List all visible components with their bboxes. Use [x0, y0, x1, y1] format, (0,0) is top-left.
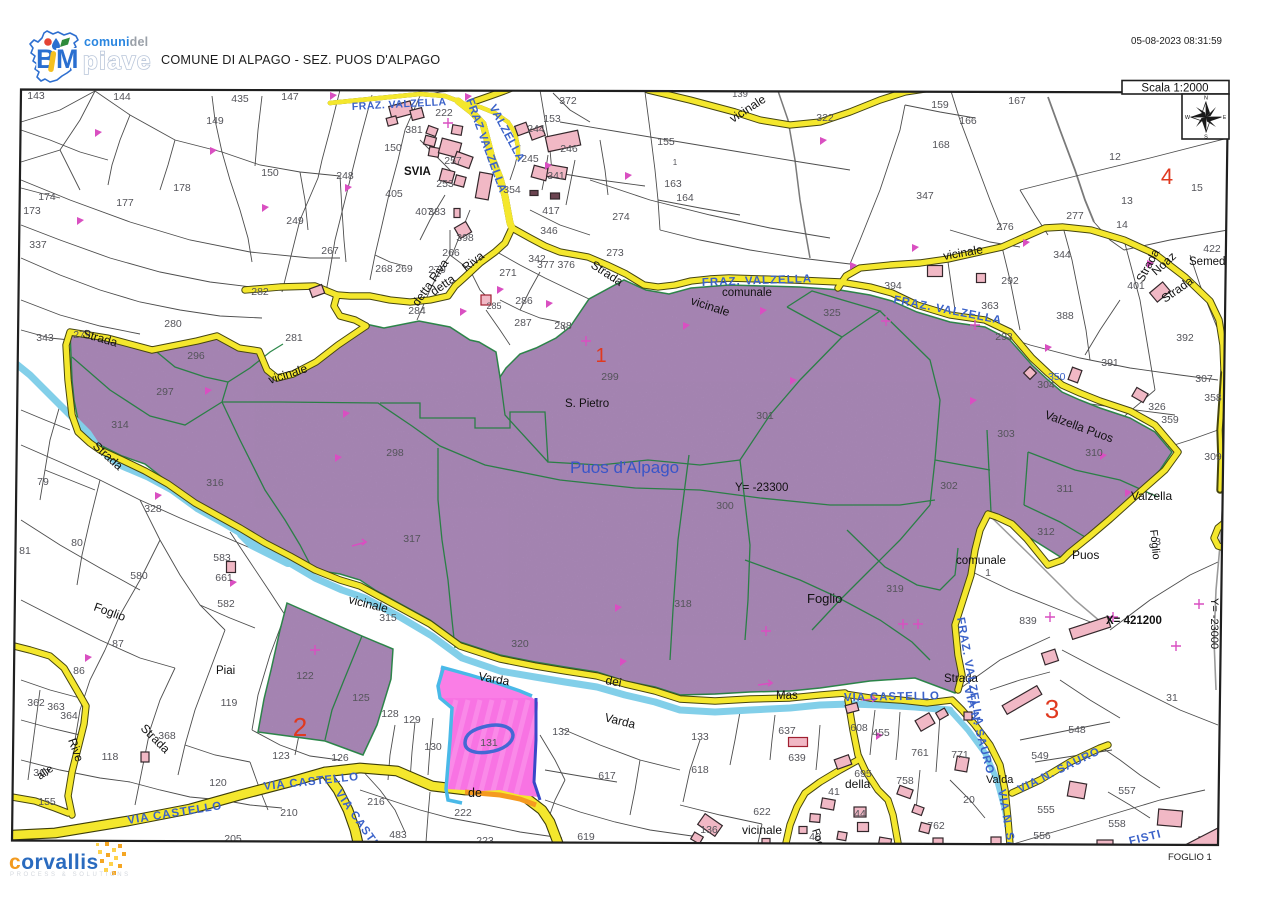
svg-text:129: 129: [403, 714, 421, 726]
svg-text:136: 136: [700, 824, 718, 836]
svg-text:288: 288: [554, 320, 572, 332]
svg-text:X= 421200: X= 421200: [1106, 615, 1162, 627]
svg-text:2: 2: [293, 712, 307, 742]
svg-text:277: 277: [1066, 210, 1084, 222]
svg-text:771: 771: [951, 749, 969, 761]
svg-text:248: 248: [336, 170, 354, 182]
svg-text:405: 405: [385, 188, 403, 200]
svg-text:205: 205: [224, 833, 242, 845]
svg-text:1: 1: [595, 345, 606, 367]
svg-text:168: 168: [932, 139, 950, 151]
svg-text:223: 223: [476, 835, 494, 847]
svg-text:Piai: Piai: [216, 665, 235, 677]
svg-text:piave: piave: [83, 48, 152, 75]
svg-text:130: 130: [424, 741, 442, 753]
svg-text:282: 282: [251, 286, 269, 298]
svg-text:312: 312: [1037, 526, 1055, 538]
svg-text:661: 661: [215, 572, 233, 584]
svg-text:363: 363: [981, 300, 999, 312]
svg-text:299: 299: [601, 371, 619, 383]
svg-text:FOGLIO 1: FOGLIO 1: [1168, 852, 1212, 863]
svg-text:326: 326: [1148, 401, 1166, 413]
svg-text:358: 358: [1204, 392, 1222, 404]
svg-text:580: 580: [130, 570, 148, 582]
svg-text:359: 359: [1161, 414, 1179, 426]
svg-text:343: 343: [36, 332, 54, 344]
svg-text:377 376: 377 376: [537, 259, 575, 271]
svg-text:293: 293: [995, 331, 1013, 343]
svg-text:257: 257: [444, 155, 462, 167]
svg-text:Foglio: Foglio: [807, 591, 842, 606]
svg-text:80: 80: [71, 537, 83, 549]
svg-text:S. Pietro: S. Pietro: [565, 398, 609, 410]
svg-text:222: 222: [435, 107, 453, 119]
svg-text:347: 347: [916, 190, 934, 202]
svg-text:398: 398: [456, 232, 474, 244]
svg-text:549: 549: [1031, 750, 1049, 762]
svg-text:119: 119: [221, 697, 238, 709]
svg-text:762: 762: [927, 820, 945, 832]
svg-text:13: 13: [1121, 195, 1133, 207]
svg-text:1: 1: [673, 158, 678, 167]
svg-text:557: 557: [1118, 785, 1136, 797]
svg-text:150: 150: [384, 142, 402, 154]
svg-text:222: 222: [454, 807, 472, 819]
svg-text:555: 555: [1037, 804, 1055, 816]
svg-text:297: 297: [156, 386, 174, 398]
svg-text:PROCESS & SOLUTIONS: PROCESS & SOLUTIONS: [10, 872, 131, 878]
svg-text:Scala 1:2000: Scala 1:2000: [1141, 83, 1208, 95]
svg-text:123: 123: [272, 750, 290, 762]
svg-text:303: 303: [997, 428, 1015, 440]
svg-text:79: 79: [37, 476, 49, 488]
svg-text:435: 435: [231, 93, 249, 105]
svg-text:286: 286: [515, 295, 533, 307]
svg-text:VIA CASTELLO: VIA CASTELLO: [844, 690, 940, 704]
svg-text:637: 637: [778, 725, 796, 737]
svg-text:05-08-2023 08:31:59: 05-08-2023 08:31:59: [1131, 36, 1222, 47]
svg-text:144: 144: [113, 91, 131, 103]
svg-text:300: 300: [716, 500, 734, 512]
svg-text:corvallis: corvallis: [9, 851, 99, 874]
svg-text:320: 320: [511, 638, 529, 650]
svg-text:118: 118: [102, 751, 119, 763]
svg-text:328: 328: [144, 503, 162, 515]
svg-text:617: 617: [598, 770, 616, 782]
svg-text:comunale: comunale: [722, 287, 772, 299]
svg-text:622: 622: [753, 806, 771, 818]
svg-text:372: 372: [559, 95, 577, 107]
svg-text:153: 153: [543, 113, 561, 125]
svg-text:131: 131: [480, 737, 498, 749]
svg-text:143: 143: [27, 90, 45, 102]
svg-text:3: 3: [1045, 694, 1059, 724]
svg-text:12: 12: [1109, 151, 1121, 163]
svg-text:86: 86: [73, 665, 85, 677]
svg-text:149: 149: [206, 115, 224, 127]
svg-text:483: 483: [389, 829, 407, 841]
svg-text:311: 311: [1057, 483, 1074, 495]
svg-text:della: della: [845, 777, 871, 791]
svg-text:Y= -23000: Y= -23000: [1208, 598, 1220, 649]
svg-text:337: 337: [29, 239, 47, 251]
svg-text:287: 287: [514, 317, 532, 329]
svg-text:307: 307: [1195, 373, 1213, 385]
svg-text:163: 163: [664, 178, 682, 190]
svg-text:761: 761: [911, 747, 929, 759]
svg-text:147: 147: [281, 91, 299, 103]
svg-text:244: 244: [527, 123, 545, 135]
svg-text:SVIA: SVIA: [404, 166, 431, 178]
svg-text:302: 302: [940, 480, 958, 492]
svg-text:317: 317: [403, 533, 421, 545]
svg-text:548: 548: [1068, 724, 1086, 736]
svg-text:14: 14: [1116, 219, 1128, 231]
svg-text:31: 31: [1166, 692, 1178, 704]
svg-text:253: 253: [436, 178, 454, 190]
svg-text:Valda: Valda: [986, 774, 1014, 786]
svg-text:281: 281: [285, 332, 303, 344]
svg-text:383: 383: [428, 206, 446, 218]
svg-text:319: 319: [886, 583, 904, 595]
svg-text:81: 81: [19, 545, 31, 557]
svg-text:20: 20: [963, 794, 975, 806]
svg-text:758: 758: [896, 775, 914, 787]
svg-text:120: 120: [209, 777, 227, 789]
svg-text:Valzella: Valzella: [1131, 489, 1172, 503]
svg-text:639: 639: [788, 752, 806, 764]
svg-text:125: 125: [352, 692, 370, 704]
svg-text:vicinale: vicinale: [742, 823, 782, 837]
svg-text:325: 325: [823, 307, 841, 319]
svg-text:392: 392: [1176, 332, 1194, 344]
svg-text:Mas: Mas: [776, 690, 798, 702]
svg-text:comunidel: comunidel: [84, 35, 148, 49]
svg-text:318: 318: [674, 598, 692, 610]
svg-text:159: 159: [931, 99, 949, 111]
svg-text:582: 582: [217, 598, 235, 610]
svg-text:S: S: [1204, 135, 1208, 141]
svg-text:178: 178: [173, 182, 191, 194]
svg-text:210: 210: [280, 807, 298, 819]
svg-text:280: 280: [164, 318, 182, 330]
svg-text:346: 346: [540, 225, 558, 237]
svg-text:583: 583: [213, 552, 231, 564]
svg-text:839: 839: [1019, 615, 1037, 627]
svg-text:391: 391: [1101, 357, 1119, 369]
svg-text:285: 285: [486, 301, 501, 311]
svg-text:87: 87: [112, 638, 124, 650]
svg-text:128: 128: [381, 708, 399, 720]
svg-text:41: 41: [828, 786, 840, 798]
svg-text:133: 133: [691, 731, 709, 743]
svg-text:1: 1: [985, 567, 991, 579]
svg-text:322: 322: [816, 112, 834, 124]
svg-text:362: 362: [27, 697, 45, 709]
svg-text:292: 292: [1001, 275, 1019, 287]
svg-text:422: 422: [1203, 243, 1221, 255]
svg-text:274: 274: [612, 211, 630, 223]
svg-text:Puos: Puos: [1072, 548, 1099, 562]
svg-text:216: 216: [367, 796, 385, 808]
svg-text:310: 310: [1085, 447, 1103, 459]
svg-text:268: 268: [375, 263, 393, 275]
svg-text:173: 173: [23, 205, 41, 217]
svg-text:394: 394: [884, 280, 902, 292]
svg-text:364: 364: [60, 710, 78, 722]
svg-text:150: 150: [261, 167, 279, 179]
svg-text:341: 341: [547, 170, 565, 182]
svg-text:350: 350: [1048, 371, 1066, 383]
svg-text:269: 269: [395, 263, 413, 275]
svg-text:N: N: [1204, 96, 1208, 102]
svg-text:296: 296: [187, 350, 205, 362]
svg-text:177: 177: [116, 197, 134, 209]
svg-text:Puos d'Alpago: Puos d'Alpago: [570, 458, 679, 477]
svg-text:558: 558: [1108, 818, 1126, 830]
svg-text:314: 314: [111, 419, 129, 431]
svg-text:167: 167: [1008, 95, 1026, 107]
svg-text:164: 164: [676, 192, 694, 204]
svg-text:249: 249: [286, 215, 304, 227]
svg-text:417: 417: [542, 205, 560, 217]
svg-text:266: 266: [442, 247, 460, 259]
svg-text:271: 271: [499, 267, 517, 279]
svg-text:4: 4: [1161, 164, 1173, 189]
svg-text:M: M: [56, 44, 79, 74]
svg-text:155: 155: [38, 796, 56, 808]
svg-text:618: 618: [691, 764, 709, 776]
svg-text:15: 15: [1191, 182, 1203, 194]
svg-text:388: 388: [1056, 310, 1074, 322]
svg-text:267: 267: [321, 245, 339, 257]
svg-text:de: de: [468, 786, 482, 800]
svg-text:619: 619: [577, 831, 595, 843]
svg-text:Y= -23300: Y= -23300: [735, 482, 788, 494]
svg-text:608: 608: [850, 722, 868, 734]
svg-text:155: 155: [657, 136, 675, 148]
svg-text:comunale: comunale: [956, 555, 1006, 567]
svg-text:132: 132: [552, 726, 570, 738]
svg-text:246: 246: [560, 143, 578, 155]
svg-text:W: W: [1185, 115, 1191, 121]
svg-text:166: 166: [959, 115, 977, 127]
svg-text:381: 381: [405, 124, 423, 136]
svg-text:276: 276: [996, 221, 1014, 233]
svg-text:dei: dei: [604, 673, 622, 690]
svg-text:44: 44: [854, 808, 866, 820]
svg-text:455: 455: [872, 727, 890, 739]
svg-text:298: 298: [386, 447, 404, 459]
svg-text:316: 316: [206, 477, 224, 489]
svg-text:122: 122: [296, 670, 314, 682]
svg-text:174: 174: [38, 191, 56, 203]
svg-text:301: 301: [756, 410, 774, 422]
svg-text:COMUNE DI ALPAGO - SEZ. PUOS D: COMUNE DI ALPAGO - SEZ. PUOS D'ALPAGO: [161, 53, 440, 67]
svg-text:309: 309: [1204, 451, 1222, 463]
svg-text:126: 126: [331, 752, 349, 764]
svg-text:344: 344: [1053, 249, 1071, 261]
svg-text:273: 273: [606, 247, 624, 259]
svg-text:556: 556: [1033, 830, 1051, 842]
